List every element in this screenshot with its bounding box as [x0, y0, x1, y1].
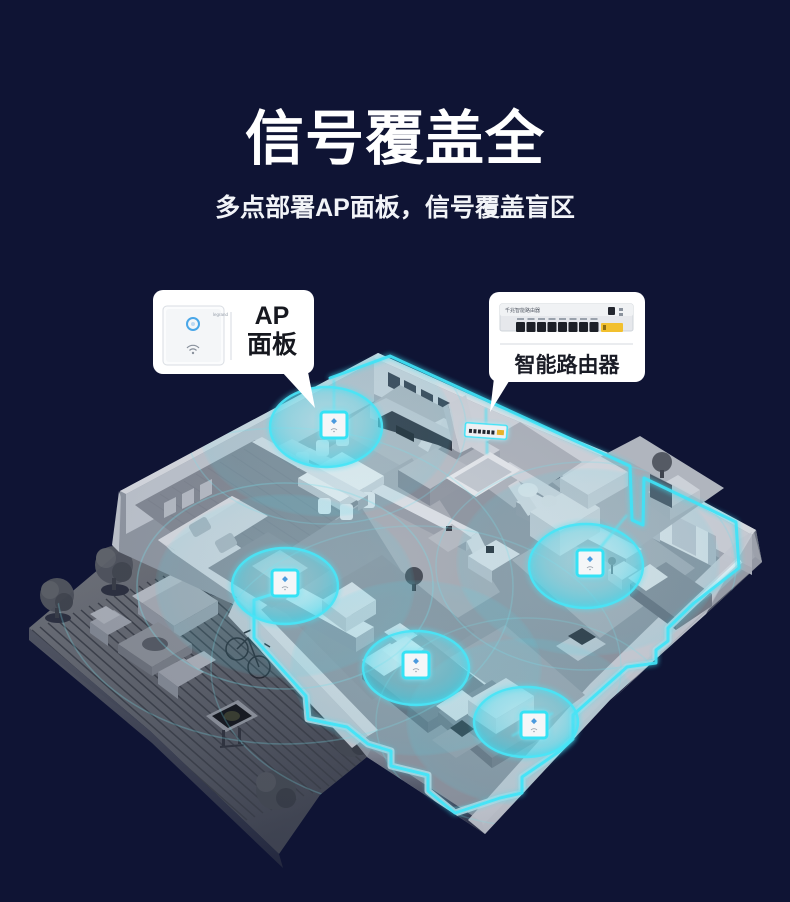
svg-text:千兆智能路由器: 千兆智能路由器: [505, 307, 540, 314]
svg-text:legrand: legrand: [213, 312, 229, 317]
